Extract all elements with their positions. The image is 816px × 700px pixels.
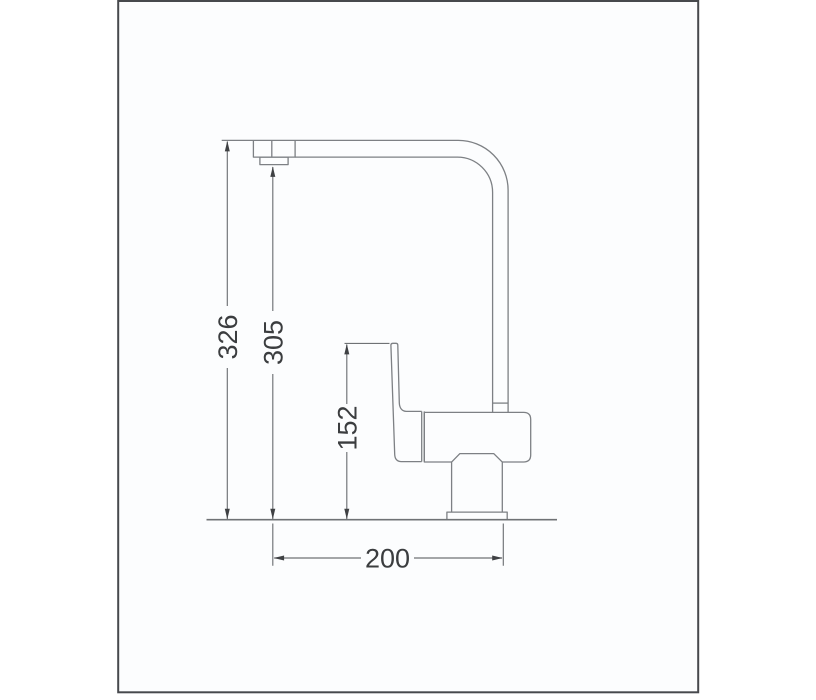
base-flange <box>447 512 507 520</box>
neck-column <box>452 454 503 512</box>
dimension-label-overall-height: 326 <box>213 314 243 359</box>
dimension-label-outlet-height: 305 <box>258 320 288 365</box>
dimension-label-reach: 200 <box>365 543 410 573</box>
drawing-frame-border <box>118 1 698 692</box>
faucet-dimension-drawing: 326 305 152 200 <box>0 0 816 700</box>
drawing-page: 326 305 152 200 <box>0 0 816 700</box>
dimension-label-body-height: 152 <box>332 405 362 450</box>
